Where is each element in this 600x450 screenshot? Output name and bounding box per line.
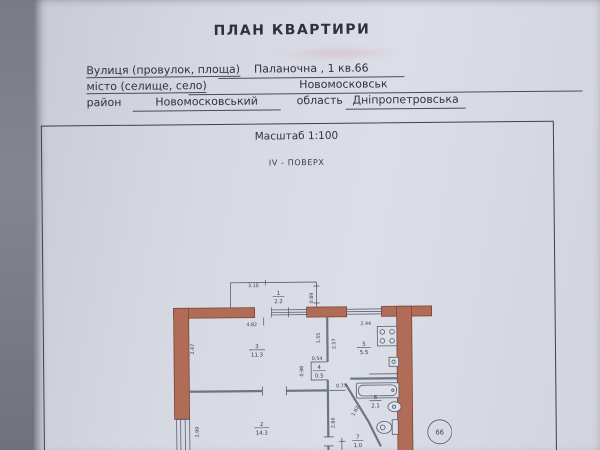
room5-label: 5 5.5	[357, 341, 371, 356]
svg-text:4: 4	[317, 365, 321, 371]
apartment-number-badge: 66	[428, 420, 452, 444]
kitchen-window	[347, 306, 382, 316]
svg-text:7: 7	[356, 435, 359, 441]
photo-scene: ПЛАН КВАРТИРИ Вулиця (провулок, площа) П…	[0, 0, 600, 450]
balcony-window	[255, 307, 307, 325]
floor-plan-svg: 3.10 0.89 4.82 2.44 2.47 1.55 2.57 0.54 …	[168, 276, 452, 450]
dim-hall-opening: 0.77	[336, 383, 347, 389]
room2-label: 2 14.3	[254, 422, 269, 437]
svg-text:2.1: 2.1	[371, 403, 380, 409]
dim-kitchen-width: 2.44	[360, 321, 371, 327]
floor-plan-drawing: 3.10 0.89 4.82 2.44 2.47 1.55 2.57 0.54 …	[168, 276, 452, 450]
street-value: Паланочна , 1 кв.66	[218, 61, 404, 79]
dim-balcony-width: 3.10	[248, 283, 259, 289]
dimension-labels: 3.10 0.89 4.82 2.44 2.47 1.55 2.57 0.54 …	[189, 282, 372, 438]
region-label: область	[297, 94, 343, 107]
svg-text:66: 66	[436, 428, 444, 436]
svg-text:0.5: 0.5	[315, 373, 324, 379]
street-row: Вулиця (провулок, площа) Паланочна , 1 к…	[34, 59, 598, 64]
svg-text:6: 6	[374, 395, 378, 401]
room3-label: 3 11.3	[249, 344, 265, 359]
svg-text:3: 3	[255, 344, 258, 350]
room1-label: 1 2.2	[272, 291, 284, 305]
room2-window	[177, 419, 190, 450]
bathtub-icon	[356, 383, 399, 398]
dim-room2-window: 2.99	[195, 427, 201, 438]
city-value: Новомосковськ	[188, 75, 582, 95]
dim-hall-seg: 1.55	[316, 333, 322, 344]
svg-text:2: 2	[260, 422, 263, 428]
washbasin-icon	[388, 402, 401, 412]
document-paper: ПЛАН КВАРТИРИ Вулиця (провулок, площа) П…	[34, 0, 600, 450]
room4-label: 4 0.5	[313, 365, 326, 380]
dim-closet-width: 0.54	[312, 356, 323, 362]
ink-bleed-stain	[274, 46, 402, 60]
room7-label: 7 1.0	[352, 435, 363, 450]
stove-icon	[377, 326, 397, 346]
svg-text:1: 1	[277, 291, 280, 297]
kitchen-sink-icon	[389, 357, 399, 366]
dim-room3-width: 4.82	[246, 322, 257, 328]
street-label: Вулиця (провулок, площа)	[86, 63, 240, 77]
dim-room2-depth: 2.86	[331, 417, 337, 428]
dim-balcony-depth: 0.89	[309, 293, 315, 304]
svg-text:5.5: 5.5	[360, 350, 369, 356]
dim-closet-depth: 0.98	[299, 366, 305, 377]
svg-text:11.3: 11.3	[251, 353, 263, 359]
document-content: ПЛАН КВАРТИРИ Вулиця (провулок, площа) П…	[34, 0, 600, 450]
region-value: Дніпропетровська	[346, 93, 466, 110]
district-label: район	[87, 96, 122, 109]
svg-text:14.3: 14.3	[256, 430, 268, 436]
svg-text:1.0: 1.0	[354, 443, 363, 449]
svg-text:5: 5	[362, 342, 365, 348]
document-title: ПЛАН КВАРТИРИ	[34, 20, 552, 41]
district-value: Новомосковський	[133, 94, 281, 111]
toilet-icon	[377, 420, 399, 435]
dim-room3-depth: 2.47	[190, 344, 196, 355]
svg-text:2.2: 2.2	[274, 299, 283, 305]
dim-kitchen-depth: 2.57	[331, 338, 337, 349]
